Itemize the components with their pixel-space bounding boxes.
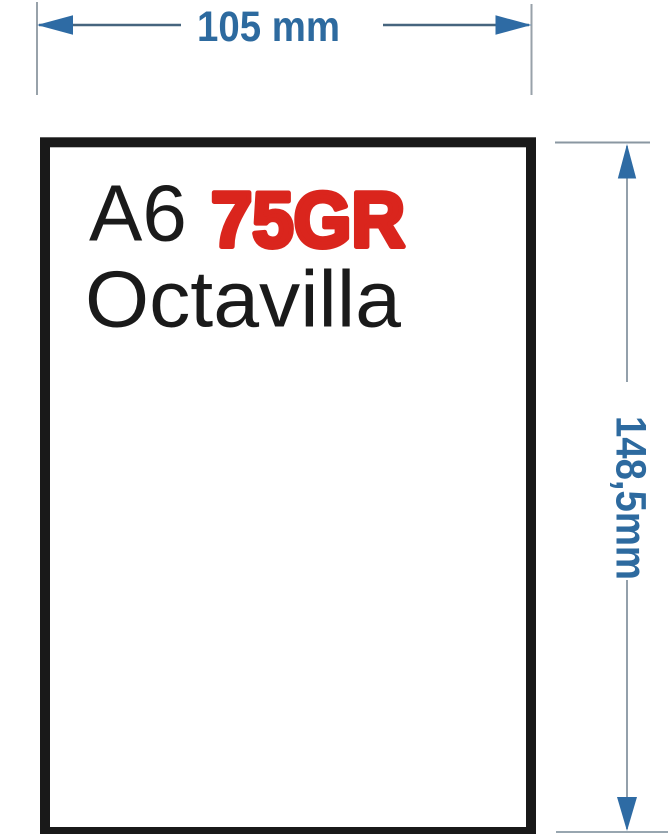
svg-text:148,5mm: 148,5mm [607, 416, 655, 580]
svg-text:75GR: 75GR [211, 176, 405, 264]
svg-text:105 mm: 105 mm [197, 3, 340, 51]
svg-text:A6: A6 [89, 169, 187, 258]
svg-text:Octavilla: Octavilla [85, 255, 402, 344]
